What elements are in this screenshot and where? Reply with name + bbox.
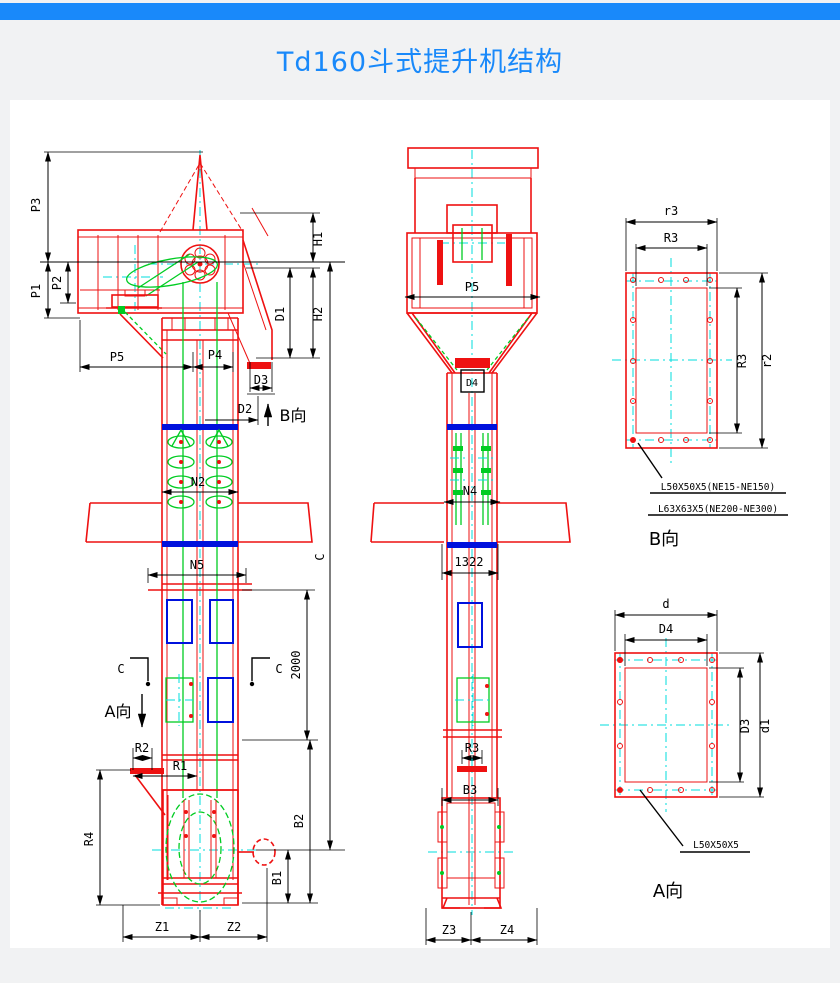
dim-label-c-total: C (313, 553, 327, 560)
dim-label-d-outer: d (662, 597, 669, 611)
dim-label-r4: R4 (82, 832, 96, 846)
dim-label-r3-side: R3 (735, 354, 749, 368)
dim-label-d1: D1 (273, 307, 287, 321)
dim-label-d2: D2 (238, 402, 252, 416)
dim-label-z1: Z1 (155, 920, 169, 934)
dim-label-d4-top: D4 (659, 622, 673, 636)
drawing-sheet: P3 P1 P2 P5 P4 H1 D1 H2 D3 D2 B向 N2 (10, 100, 830, 948)
dim-label-p3: P3 (29, 198, 43, 212)
dim-label-z4: Z4 (500, 923, 514, 937)
view-b-arrow-label: B向 (280, 406, 307, 425)
dim-label-2000: 2000 (289, 651, 303, 680)
dim-label-p1: P1 (29, 284, 43, 298)
view-b-title: B向 (649, 529, 679, 550)
angle-steel-note-2: L63X63X5(NE200-NE300) (658, 504, 778, 515)
view-a-title: A向 (653, 881, 683, 902)
dim-label-n2: N2 (191, 475, 205, 489)
dim-label-d1-side: d1 (758, 719, 772, 733)
dim-label-z2: Z2 (227, 920, 241, 934)
dim-label-d3: D3 (254, 373, 268, 387)
angle-steel-note-1: L50X50X5(NE15-NE150) (661, 482, 775, 493)
drawing-canvas: P3 P1 P2 P5 P4 H1 D1 H2 D3 D2 B向 N2 (10, 100, 830, 948)
view-b-detail: r3 R3 R3 r2 L50X50X5(NE15-NE150) L63X63X… (612, 204, 788, 550)
dim-label-n5: N5 (190, 558, 204, 572)
dim-label-d4-side: D4 (466, 378, 478, 389)
dim-label-r2-side: r2 (760, 354, 774, 368)
angle-steel-note-3: L50X50X5 (693, 840, 739, 851)
dim-label-b1: B1 (270, 871, 284, 885)
dim-label-r3-outer: r3 (664, 204, 678, 218)
dim-label-r3-top: R3 (664, 231, 678, 245)
dim-label-p5-side: P5 (465, 280, 479, 294)
dim-label-h2: H2 (311, 307, 325, 321)
dim-label-r3-side-view: R3 (465, 741, 479, 755)
dim-label-d3-side: D3 (738, 719, 752, 733)
header-bar (0, 3, 840, 20)
dim-label-b2: B2 (292, 814, 306, 828)
section-c-right-label: C (275, 662, 282, 676)
page-title: Td160斗式提升机结构 (0, 40, 840, 79)
dim-label-b3: B3 (463, 783, 477, 797)
dim-label-h1: H1 (311, 232, 325, 246)
dim-label-r1: R1 (173, 759, 187, 773)
dim-label-z3: Z3 (442, 923, 456, 937)
dim-label-p4: P4 (208, 348, 222, 362)
dim-label-p5: P5 (110, 350, 124, 364)
dim-label-p2: P2 (50, 276, 64, 290)
section-c-left-label: C (117, 662, 124, 676)
front-elevation-geometry (78, 150, 312, 912)
dim-label-1322: 1322 (455, 555, 484, 569)
dim-label-n4: N4 (463, 484, 477, 498)
view-a-arrow-label: A向 (105, 702, 132, 721)
dim-label-r2: R2 (135, 741, 149, 755)
view-a-detail: d D4 D3 d1 L50X50X5 A向 (600, 597, 772, 902)
